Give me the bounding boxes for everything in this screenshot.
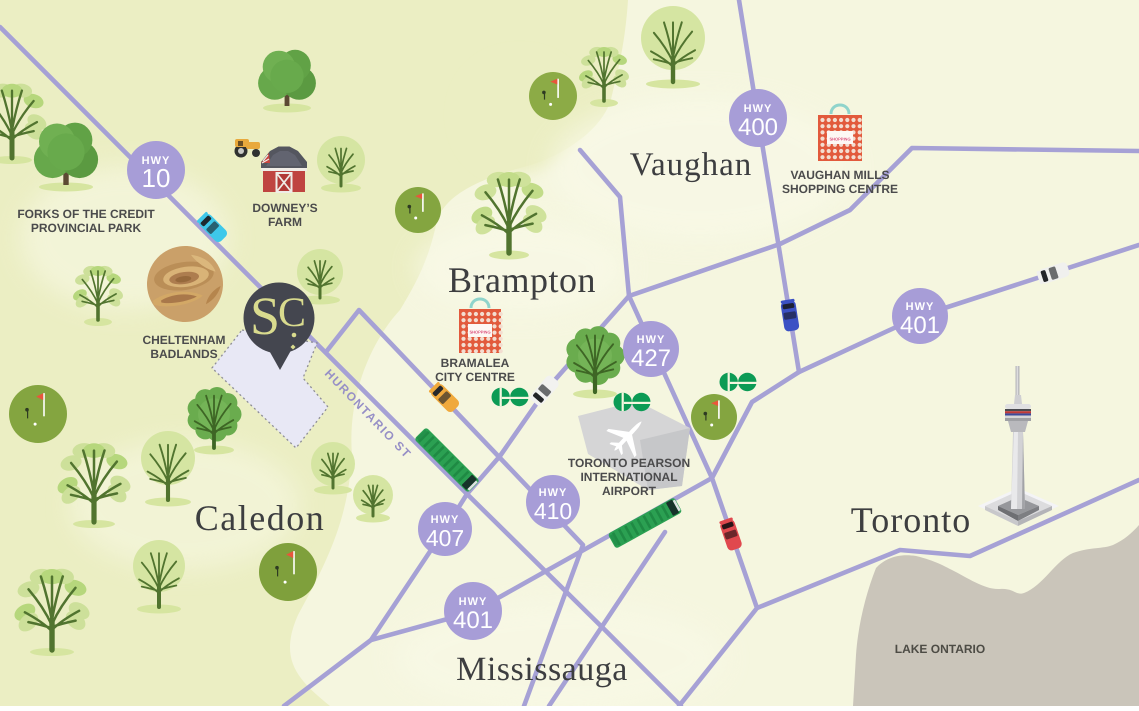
svg-text:Toronto: Toronto [851,500,971,540]
svg-text:SHOPPING: SHOPPING [829,137,850,142]
svg-text:410: 410 [534,498,572,524]
svg-text:427: 427 [631,345,671,372]
svg-text:Caledon: Caledon [195,498,325,538]
svg-text:SHOPPING: SHOPPING [469,330,490,335]
svg-text:S: S [250,286,280,346]
svg-text:CHELTENHAMBADLANDS: CHELTENHAMBADLANDS [142,333,225,361]
svg-text:BRAMALEACITY CENTRE: BRAMALEACITY CENTRE [435,356,515,384]
svg-text:FORKS OF THE CREDITPROVINCIAL: FORKS OF THE CREDITPROVINCIAL PARK [17,207,155,235]
svg-text:401: 401 [453,607,493,634]
svg-text:LAKE ONTARIO: LAKE ONTARIO [895,642,985,656]
svg-text:401: 401 [900,312,940,339]
svg-text:Vaughan: Vaughan [630,147,752,183]
svg-text:Brampton: Brampton [448,260,596,300]
svg-text:407: 407 [426,525,464,551]
svg-text:C: C [278,290,306,336]
svg-text:10: 10 [142,163,171,193]
svg-text:VAUGHAN MILLSSHOPPING CENTRE: VAUGHAN MILLSSHOPPING CENTRE [782,168,898,196]
svg-text:400: 400 [738,114,778,141]
svg-text:Mississauga: Mississauga [456,651,628,688]
